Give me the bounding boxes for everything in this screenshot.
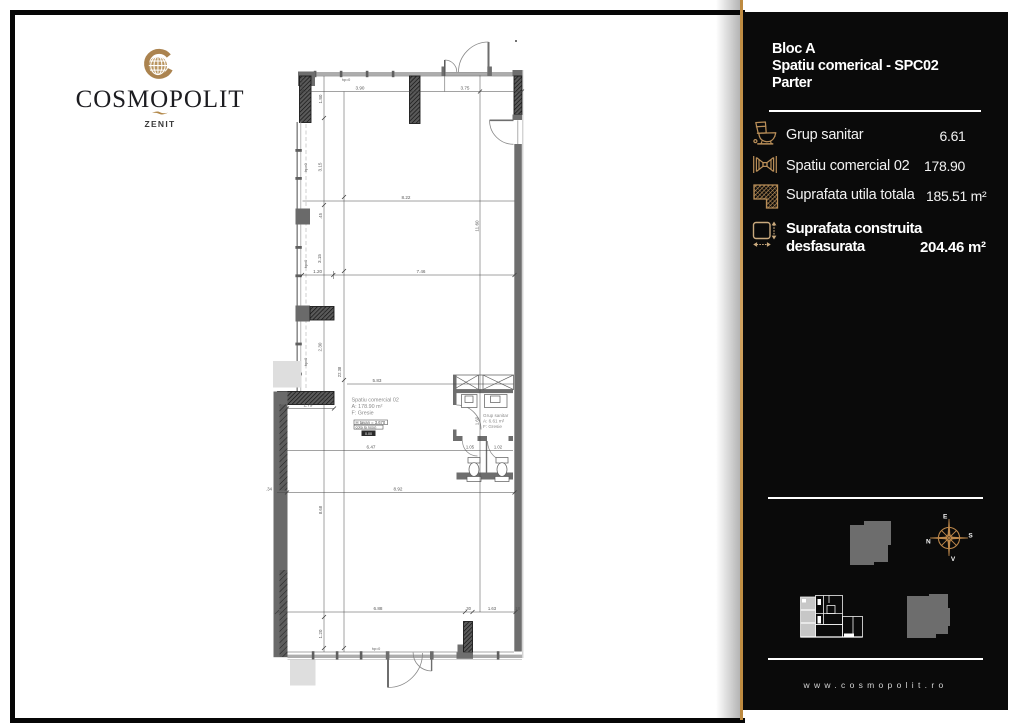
svg-text:8.22: 8.22 bbox=[402, 195, 411, 200]
svg-text:3.15: 3.15 bbox=[317, 254, 322, 263]
svg-text:A: 178.90 m²: A: 178.90 m² bbox=[352, 404, 383, 410]
svg-text:1.20: 1.20 bbox=[318, 629, 323, 638]
svg-text:hp=0: hp=0 bbox=[342, 78, 351, 82]
svg-text:N: N bbox=[926, 538, 931, 545]
svg-text:.30: .30 bbox=[465, 606, 471, 611]
svg-text:1.20: 1.20 bbox=[313, 269, 322, 274]
svg-text:1.80: 1.80 bbox=[318, 94, 323, 103]
svg-text:V: V bbox=[951, 556, 956, 563]
svg-text:H tavan = 3.670: H tavan = 3.670 bbox=[356, 420, 386, 425]
svg-text:8.92: 8.92 bbox=[394, 487, 403, 492]
svg-text:hp=0: hp=0 bbox=[372, 647, 381, 651]
svg-text:E: E bbox=[943, 514, 948, 521]
svg-text:S: S bbox=[968, 532, 973, 539]
svg-text:6.47: 6.47 bbox=[367, 445, 376, 450]
svg-text:cota la rosu): cota la rosu) bbox=[356, 426, 378, 430]
svg-text:7.46: 7.46 bbox=[417, 269, 426, 274]
svg-text:3.90: 3.90 bbox=[356, 86, 365, 91]
svg-text:1.02: 1.02 bbox=[494, 445, 503, 450]
svg-text:8.68: 8.68 bbox=[318, 505, 323, 514]
svg-text:Spatiu comercial 02: Spatiu comercial 02 bbox=[352, 398, 399, 404]
svg-text:0.00: 0.00 bbox=[365, 432, 372, 436]
svg-text:.45: .45 bbox=[318, 212, 323, 218]
svg-text:A: 6.61 m²: A: 6.61 m² bbox=[483, 419, 505, 424]
svg-text:11.60: 11.60 bbox=[475, 220, 480, 232]
svg-text:3.15: 3.15 bbox=[318, 162, 323, 171]
svg-text:Grup sanitar: Grup sanitar bbox=[483, 413, 509, 418]
svg-text:hp=0: hp=0 bbox=[304, 358, 308, 367]
svg-text:F: Gresie: F: Gresie bbox=[352, 411, 374, 417]
svg-text:2.30: 2.30 bbox=[318, 342, 323, 351]
svg-text:22.38: 22.38 bbox=[337, 366, 342, 377]
svg-text:5.83: 5.83 bbox=[373, 378, 382, 383]
svg-text:hp=0: hp=0 bbox=[304, 163, 308, 172]
svg-text:1.63: 1.63 bbox=[488, 606, 497, 611]
svg-text:6.88: 6.88 bbox=[374, 606, 383, 611]
svg-text:.18: .18 bbox=[514, 606, 520, 611]
svg-text:hp=0: hp=0 bbox=[304, 260, 308, 269]
svg-text:1.60: 1.60 bbox=[475, 416, 480, 425]
svg-text:3.75: 3.75 bbox=[461, 86, 470, 91]
svg-text:1.05: 1.05 bbox=[466, 445, 475, 450]
svg-text:1.79: 1.79 bbox=[304, 403, 313, 408]
svg-text:F: Gresie: F: Gresie bbox=[483, 424, 502, 429]
svg-text:.34: .34 bbox=[266, 487, 272, 492]
